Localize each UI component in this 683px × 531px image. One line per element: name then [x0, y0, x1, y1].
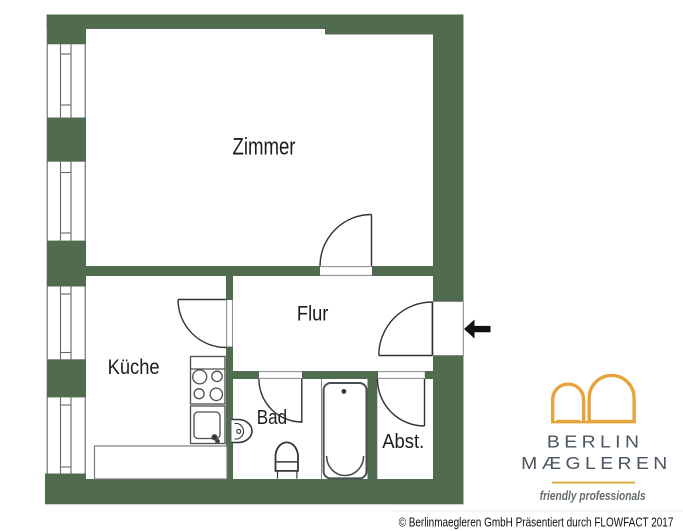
svg-text:Zimmer: Zimmer	[233, 133, 296, 160]
svg-text:Abst.: Abst.	[382, 431, 424, 453]
svg-text:BERLIN: BERLIN	[547, 432, 644, 452]
svg-text:Bad: Bad	[257, 407, 287, 429]
svg-text:Küche: Küche	[108, 356, 160, 379]
svg-text:MÆGLEREN: MÆGLEREN	[521, 453, 672, 473]
svg-text:© Berlinmaegleren GmbH Präsent: © Berlinmaegleren GmbH Präsentiert durch…	[399, 514, 674, 529]
svg-text:friendly professionals: friendly professionals	[540, 489, 646, 503]
svg-text:Flur: Flur	[297, 302, 329, 326]
